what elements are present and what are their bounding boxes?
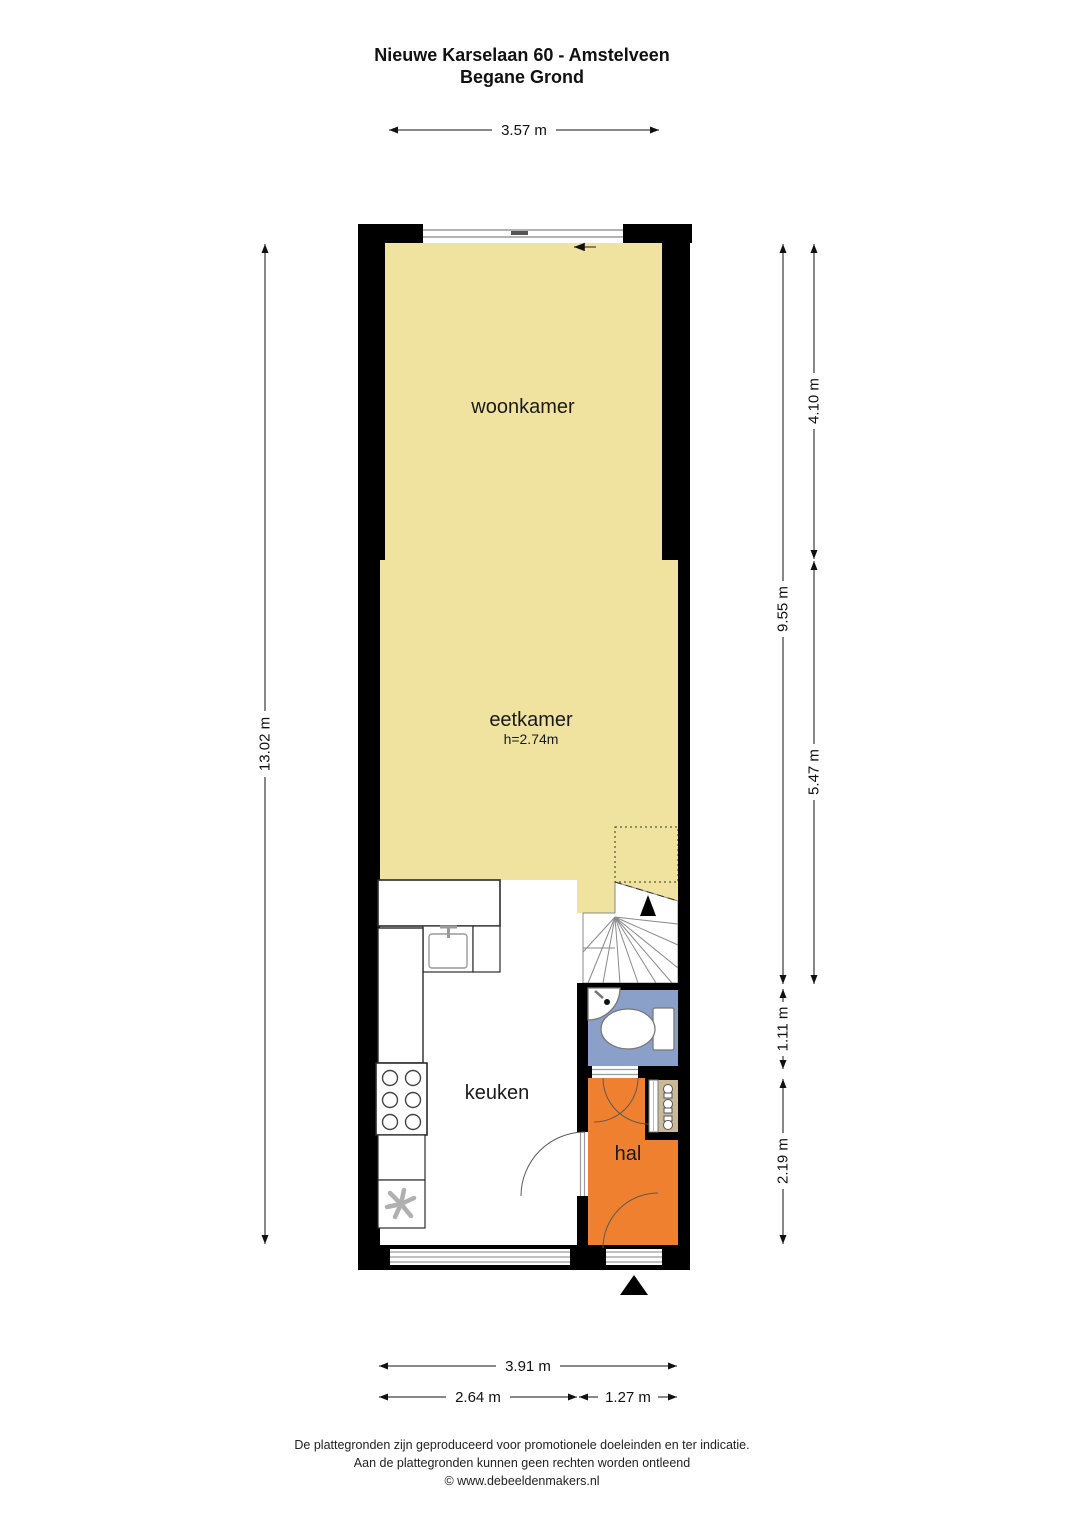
dim-right-total: 9.55 m bbox=[775, 586, 792, 632]
meter-icons bbox=[664, 1085, 673, 1130]
dim-left-height: 13.02 m bbox=[257, 717, 274, 771]
floorplan-drawing: woonkamer eetkamer h=2.74m keuken hal bbox=[0, 0, 1080, 1527]
sink-icon bbox=[429, 934, 467, 968]
counter-left-column bbox=[378, 928, 423, 1063]
dim-bottom-total: 3.91 m bbox=[505, 1358, 551, 1375]
dim-bottom-keuken: 2.64 m bbox=[455, 1389, 501, 1406]
dim-bottom-hal: 1.27 m bbox=[605, 1389, 651, 1406]
meter-icon bbox=[664, 1121, 673, 1130]
counter-segment bbox=[378, 1135, 425, 1180]
basin-drain-icon bbox=[604, 999, 610, 1005]
meter-icon bbox=[664, 1100, 673, 1109]
footer-line-2: Aan de plattegronden kunnen geen rechten… bbox=[0, 1454, 1044, 1472]
kitchen-fixtures bbox=[376, 880, 500, 1228]
window-top-slider-handle bbox=[511, 231, 528, 235]
eetkamer-floor-stair-strip bbox=[577, 880, 615, 913]
floorplan-page: Nieuwe Karselaan 60 - Amstelveen Begane … bbox=[0, 0, 1080, 1527]
meterkast bbox=[649, 1080, 678, 1132]
dim-right-upper: 4.10 m bbox=[806, 378, 823, 424]
eetkamer-label: eetkamer bbox=[489, 709, 573, 731]
dim-right-hal: 2.19 m bbox=[775, 1138, 792, 1184]
dim-top-width: 3.57 m bbox=[501, 122, 547, 139]
entrance-arrow-icon bbox=[620, 1275, 648, 1295]
eetkamer-height-label: h=2.74m bbox=[504, 731, 559, 747]
footer-line-1: De plattegronden zijn geproduceerd voor … bbox=[0, 1436, 1044, 1454]
meter-icon bbox=[664, 1093, 672, 1098]
door-arc-keuken bbox=[521, 1132, 585, 1196]
door-keuken-hal bbox=[577, 1132, 588, 1196]
wall-keuken-hal bbox=[577, 990, 588, 1245]
dim-right-toilet: 1.11 m bbox=[775, 1007, 792, 1052]
toilet-tank-icon bbox=[653, 1008, 674, 1050]
wall-top-left-block bbox=[358, 224, 423, 243]
counter-top bbox=[378, 880, 500, 926]
toilet-bowl-icon bbox=[601, 1009, 655, 1049]
door-toilet bbox=[592, 1066, 638, 1078]
footer-disclaimer: De plattegronden zijn geproduceerd voor … bbox=[0, 1436, 1044, 1490]
meter-icon bbox=[664, 1085, 673, 1094]
keuken-label: keuken bbox=[465, 1082, 530, 1104]
meter-icon bbox=[664, 1108, 672, 1113]
woonkamer-label: woonkamer bbox=[470, 396, 575, 418]
hal-label: hal bbox=[615, 1143, 642, 1165]
counter-segment bbox=[473, 926, 500, 972]
footer-copyright: © www.debeeldenmakers.nl bbox=[0, 1472, 1044, 1490]
wall-top-right-block bbox=[623, 224, 692, 243]
dim-right-lower: 5.47 m bbox=[806, 749, 823, 795]
